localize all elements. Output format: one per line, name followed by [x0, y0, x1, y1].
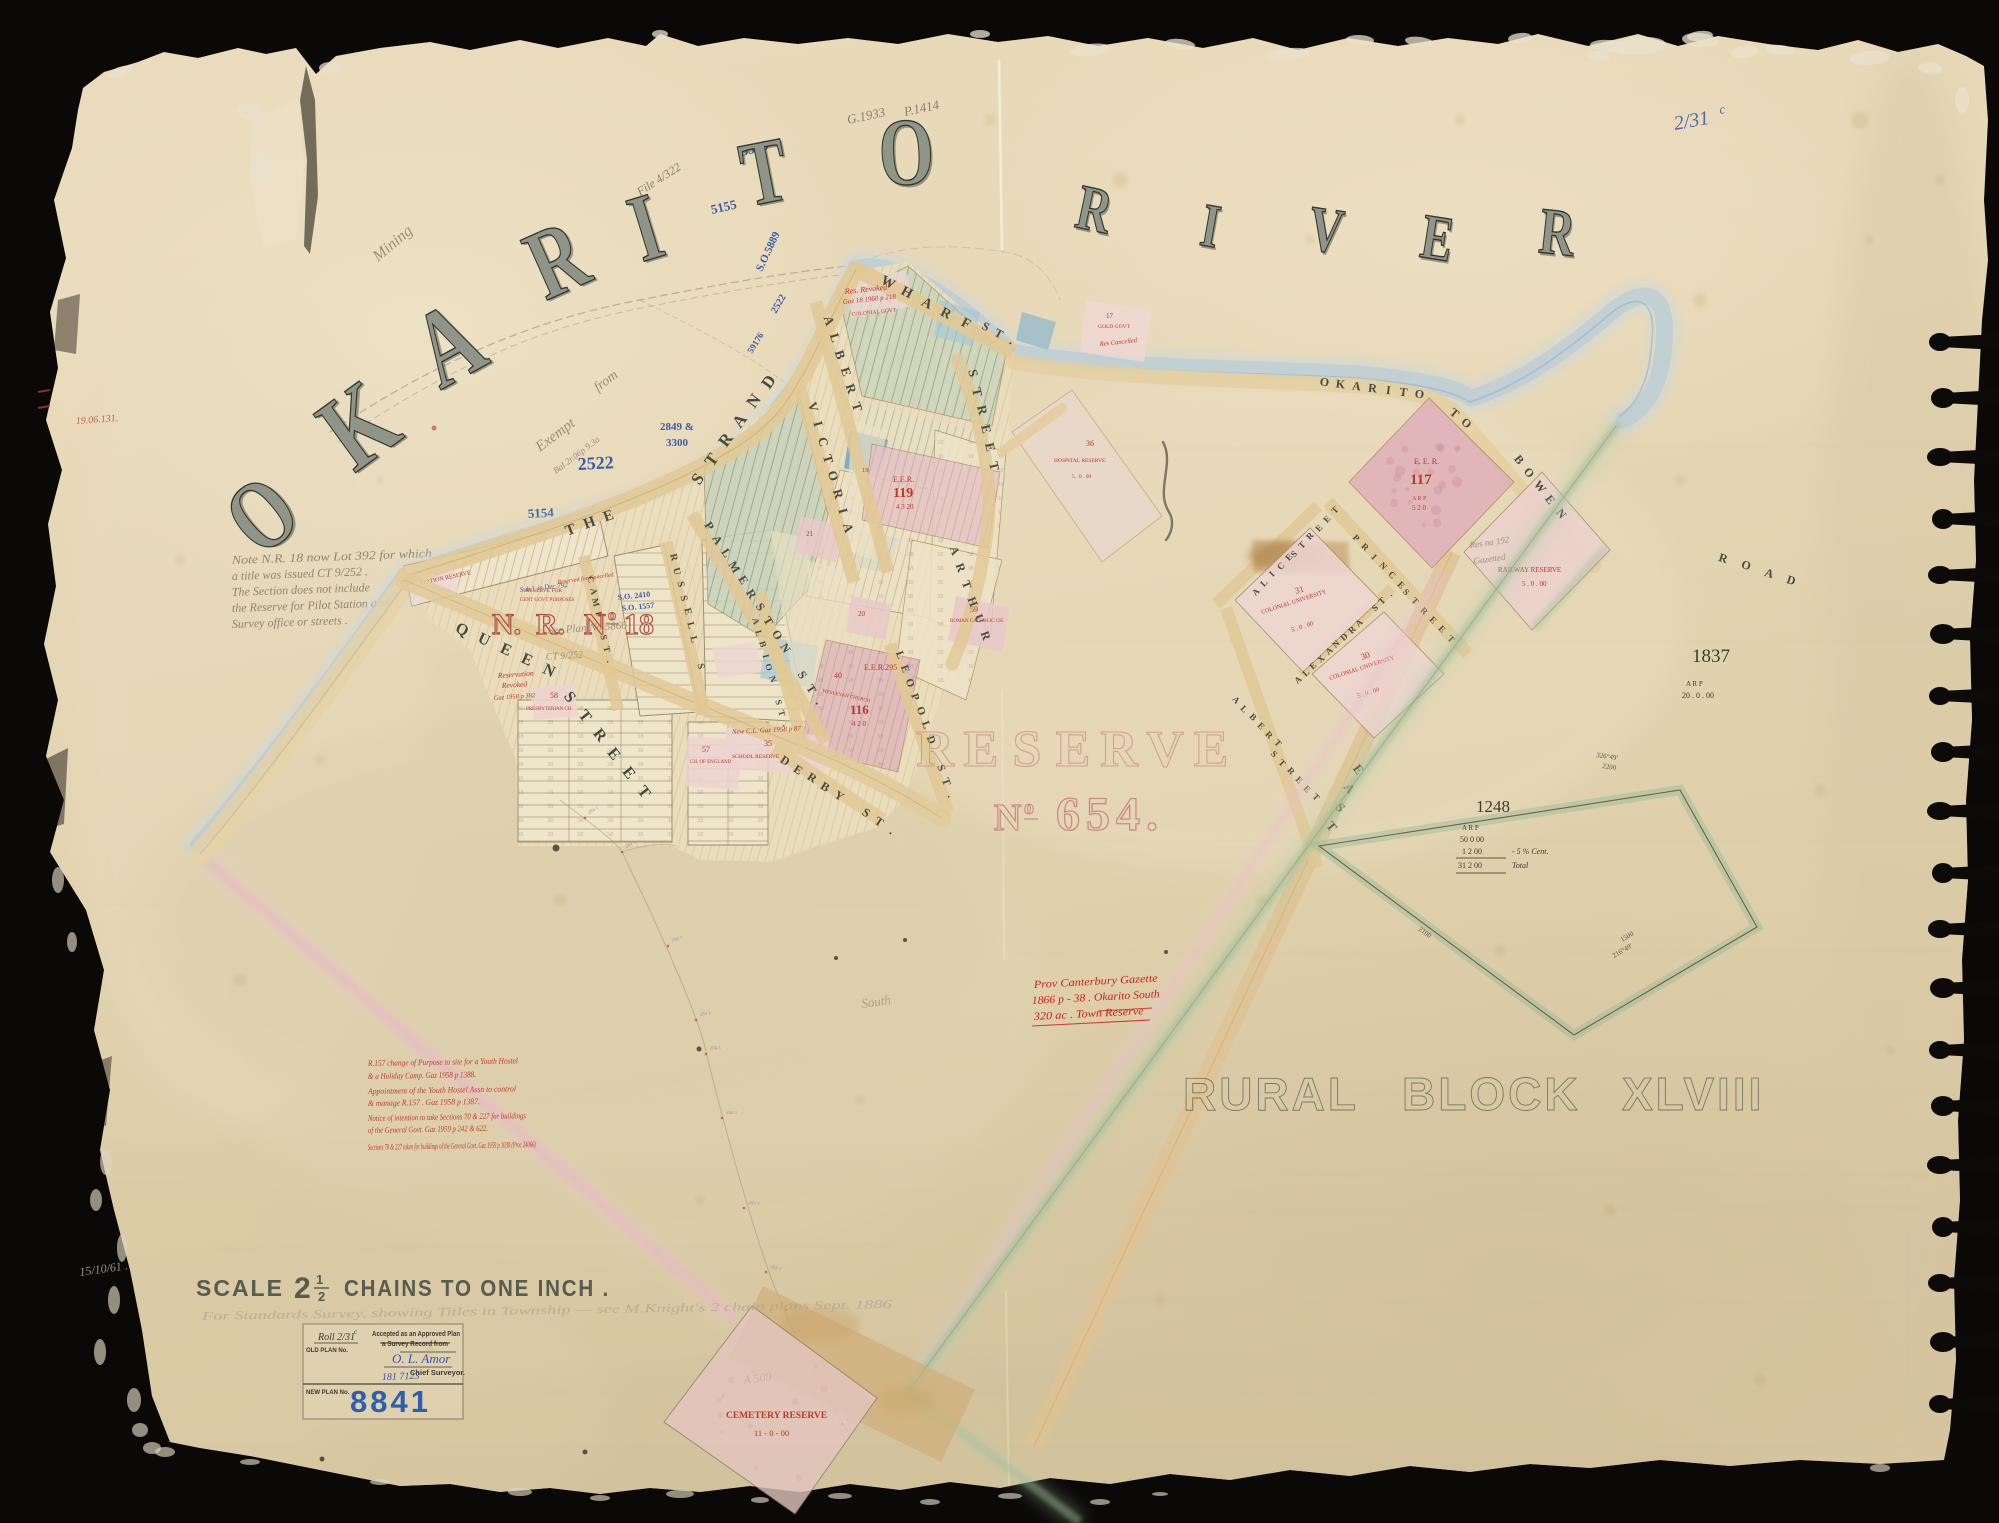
svg-text:2849 &: 2849 &	[660, 421, 694, 433]
svg-text:A R P: A R P	[1462, 824, 1479, 832]
svg-text:S: S	[1013, 721, 1042, 778]
svg-text:1: 1	[316, 1272, 323, 1287]
svg-text:R: R	[1100, 721, 1139, 778]
svg-text:59: 59	[970, 605, 978, 614]
svg-text:NEW PLAN No.: NEW PLAN No.	[306, 1390, 350, 1396]
svg-text:Roll 2/31: Roll 2/31	[317, 1332, 355, 1343]
svg-text:SCALE: SCALE	[196, 1275, 284, 1301]
svg-text:E. E. R.: E. E. R.	[1414, 457, 1439, 466]
svg-text:5 2 0: 5 2 0	[1412, 504, 1427, 512]
svg-text:8841: 8841	[350, 1384, 431, 1419]
svg-text:284 1: 284 1	[726, 1111, 738, 1116]
svg-text:18: 18	[624, 608, 654, 641]
svg-text:of the General Govt. Gaz 1959: of the General Govt. Gaz 1959 p 242 & 62…	[368, 1123, 488, 1135]
svg-text:R.: R.	[536, 608, 565, 641]
svg-text:SCHOOL RESERVE: SCHOOL RESERVE	[732, 754, 780, 760]
svg-text:11 - 0 - 00: 11 - 0 - 00	[754, 1428, 789, 1438]
svg-text:20: 20	[858, 610, 866, 618]
svg-text:119: 119	[893, 486, 913, 501]
svg-text:A R P: A R P	[1686, 680, 1703, 688]
svg-text:GOLD GOVT: GOLD GOVT	[1098, 324, 1131, 330]
svg-text:35: 35	[764, 739, 772, 748]
svg-text:XLVIII: XLVIII	[1622, 1068, 1764, 1120]
svg-text:5 . 0 . 00: 5 . 0 . 00	[1072, 474, 1092, 480]
svg-text:117: 117	[1410, 472, 1432, 488]
svg-text:& a Holiday Camp. Gaz 1958 p 1: & a Holiday Camp. Gaz 1958 p 1388.	[368, 1069, 476, 1081]
svg-text:T: T	[1399, 385, 1409, 400]
svg-text:E: E	[1194, 721, 1229, 778]
svg-text:O. L. Amor: O. L. Amor	[392, 1351, 451, 1366]
svg-text:O: O	[876, 99, 937, 207]
svg-text:Accepted as an Approved Plan: Accepted as an Approved Plan	[372, 1329, 460, 1338]
svg-text:o: o	[608, 607, 616, 624]
svg-text:40: 40	[834, 671, 842, 680]
svg-text:3300: 3300	[666, 437, 689, 449]
svg-text:5 . 0 . 00: 5 . 0 . 00	[1522, 580, 1547, 588]
svg-text:& manage R.157 . Gaz 1958 p: & manage R.157 . Gaz 1958 p 1387.	[368, 1096, 480, 1108]
svg-text:19: 19	[862, 467, 869, 474]
svg-text:2: 2	[318, 1289, 325, 1304]
svg-text:CHAINS TO ONE INCH .: CHAINS TO ONE INCH .	[344, 1275, 610, 1301]
svg-text:CH. OF ENGLAND: CH. OF ENGLAND	[690, 760, 732, 765]
svg-text:V: V	[1146, 721, 1184, 778]
svg-text:Total: Total	[1512, 861, 1529, 870]
svg-text:31 2 00: 31 2 00	[1458, 861, 1482, 870]
svg-text:E: E	[964, 721, 999, 778]
svg-text:O: O	[1319, 375, 1330, 390]
svg-text:N.: N.	[492, 608, 521, 641]
svg-text:N: N	[584, 608, 606, 641]
svg-text:ROMAN CATHOLIC CH.: ROMAN CATHOLIC CH.	[950, 619, 1004, 624]
svg-text:N: N	[994, 797, 1021, 839]
svg-text:RURAL: RURAL	[1183, 1068, 1359, 1120]
svg-text:20 . 0 . 00: 20 . 0 . 00	[1682, 691, 1714, 700]
svg-text:57: 57	[702, 745, 710, 754]
svg-text:50 0 00: 50 0 00	[1460, 835, 1484, 844]
svg-text:Revoked: Revoked	[501, 679, 528, 690]
svg-text:GENT GOVT PURPOSES: GENT GOVT PURPOSES	[520, 598, 574, 603]
svg-text:CEMETERY RESERVE: CEMETERY RESERVE	[726, 1411, 827, 1421]
svg-text:4 3 20: 4 3 20	[896, 503, 914, 511]
svg-text:2: 2	[294, 1272, 311, 1305]
svg-text:A R P: A R P	[1412, 496, 1427, 502]
svg-text:E.E.R.295: E.E.R.295	[864, 663, 897, 672]
svg-text:654.: 654.	[1056, 788, 1164, 841]
svg-text:17: 17	[1106, 312, 1114, 320]
svg-text:E.E.R.: E.E.R.	[893, 475, 914, 484]
svg-text:o: o	[1024, 797, 1034, 819]
svg-text:HOSPITAL RESERVE: HOSPITAL RESERVE	[1054, 458, 1106, 464]
svg-text:36: 36	[1086, 439, 1094, 448]
svg-text:E: E	[1056, 721, 1091, 778]
svg-text:OLD PLAN No.: OLD PLAN No.	[306, 1348, 348, 1354]
svg-text:1248: 1248	[1476, 797, 1510, 816]
svg-text:181 7123: 181 7123	[382, 1371, 420, 1383]
svg-text:PRESBYTERIAN CH.: PRESBYTERIAN CH.	[526, 707, 573, 712]
svg-text:58: 58	[550, 691, 558, 700]
svg-text:1837: 1837	[1692, 646, 1730, 667]
svg-text:2522: 2522	[577, 452, 614, 474]
svg-text:21: 21	[806, 530, 814, 538]
svg-text:- 5 % Cent.: - 5 % Cent.	[1512, 847, 1548, 856]
svg-text:1 2 00: 1 2 00	[1462, 847, 1482, 856]
svg-text:O: O	[1414, 387, 1425, 402]
svg-text:4 2 0: 4 2 0	[852, 720, 867, 728]
svg-text:116: 116	[850, 702, 869, 717]
svg-text:BLOCK: BLOCK	[1402, 1068, 1581, 1120]
svg-text:R: R	[916, 721, 955, 778]
